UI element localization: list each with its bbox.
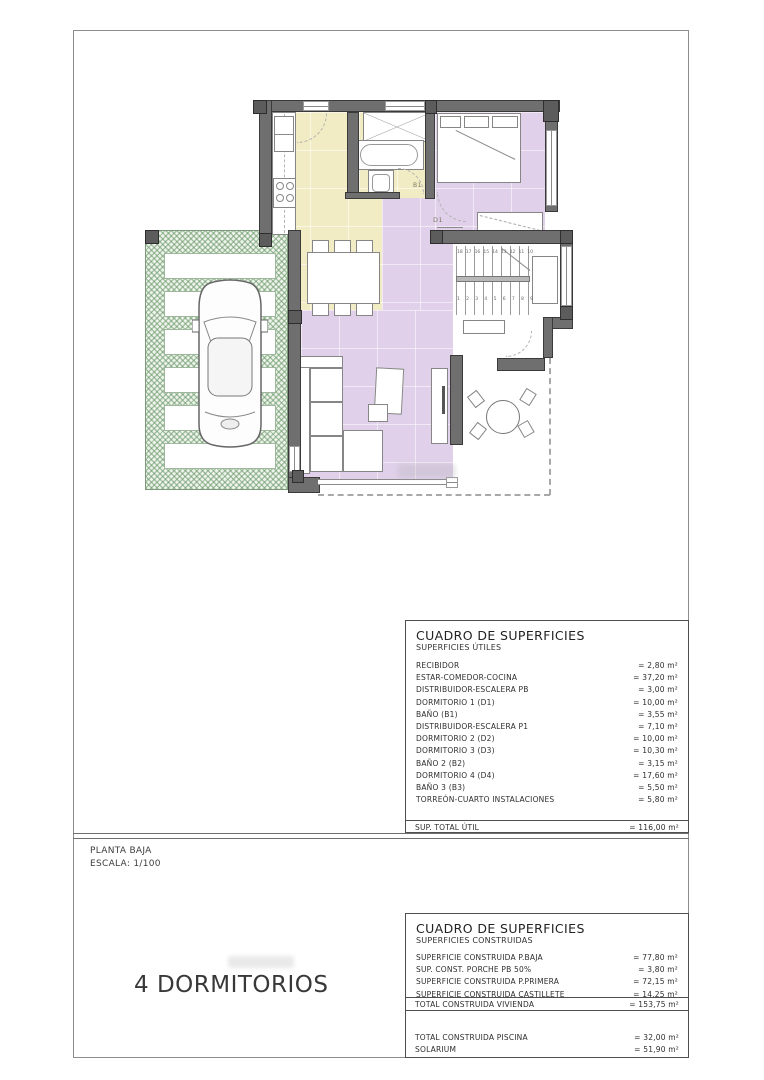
total-label: SUP. TOTAL ÚTIL — [415, 823, 479, 832]
stair-step-number: 16 — [475, 250, 481, 255]
row-label: TORREÓN-CUARTO INSTALACIONES — [416, 794, 554, 806]
wall-pier — [292, 470, 304, 483]
table-row: RECIBIDOR= 2,80 m² — [416, 660, 678, 672]
row-value: = 10,30 m² — [633, 745, 678, 757]
porch-chair — [517, 420, 534, 438]
table-row: DORMITORIO 3 (D3)= 10,30 m² — [416, 745, 678, 757]
stair-step-number: 13 — [501, 250, 507, 255]
wall-bath-bottom — [345, 192, 400, 199]
row-label: ESTAR-COMEDOR-COCINA — [416, 672, 517, 684]
porch-boundary-bottom — [318, 494, 550, 496]
wall-pier — [543, 100, 559, 122]
bath-closet — [363, 112, 431, 142]
burner-icon — [286, 194, 294, 202]
stair-step-number: 4 — [484, 297, 487, 302]
table-rows: RECIBIDOR= 2,80 m²ESTAR-COMEDOR-COCINA= … — [406, 652, 688, 806]
entry-door-gap — [289, 446, 300, 472]
row-label: SUPERFICIE CONSTRUIDA P.PRIMERA — [416, 976, 559, 988]
stair-step-number: 3 — [475, 297, 478, 302]
row-label: DORMITORIO 3 (D3) — [416, 745, 495, 757]
wall-pier — [430, 230, 443, 244]
wall-kitchen-left — [259, 100, 272, 247]
table-row: DORMITORIO 4 (D4)= 17,60 m² — [416, 770, 678, 782]
wall-bath-partition — [347, 112, 359, 198]
row-value: = 5,80 m² — [638, 794, 678, 806]
caption-line1: PLANTA BAJA — [90, 845, 161, 858]
row-value: = 2,80 m² — [638, 660, 678, 672]
row-label: SOLARIUM — [415, 1044, 456, 1056]
wall-pier — [425, 100, 437, 114]
section-divider — [73, 833, 689, 834]
total-vivienda-row: TOTAL CONSTRUIDA VIVIENDA = 153,75 m² — [405, 997, 689, 1011]
row-label: DORMITORIO 1 (D1) — [416, 697, 495, 709]
pillow — [440, 116, 461, 128]
burner-icon — [286, 182, 294, 190]
dining-chair — [312, 240, 329, 253]
porch-chair — [469, 422, 487, 440]
stair-numbers-top: 181716151413121110 — [457, 250, 533, 255]
stair-step-number: 17 — [466, 250, 472, 255]
wall-porch-top — [497, 358, 545, 371]
porch-chair — [519, 388, 537, 406]
stair-step-number: 18 — [457, 250, 463, 255]
sofa-seat — [310, 368, 343, 402]
table-row: SUP. CONST. PORCHE PB 50%= 3,80 m² — [416, 964, 678, 976]
stair-landing — [532, 256, 558, 304]
wall-pier — [253, 100, 267, 114]
stair-numbers-bottom: 123456789 — [457, 297, 533, 302]
row-label: DISTRIBUIDOR-ESCALERA P1 — [416, 721, 528, 733]
table-row: SOLARIUM= 51,90 m² — [415, 1044, 679, 1056]
stair-step-number: 9 — [530, 297, 533, 302]
sofa-chaise — [343, 430, 383, 472]
leader-line — [437, 227, 463, 228]
total-value: = 153,75 m² — [629, 1000, 679, 1009]
window-stair-right — [561, 246, 572, 306]
sofa-seat — [310, 436, 343, 472]
sofa-seat — [310, 402, 343, 436]
table-superficies-utiles: CUADRO DE SUPERFICIES SUPERFICIES ÚTILES… — [405, 620, 689, 833]
table-row: DORMITORIO 2 (D2)= 10,00 m² — [416, 733, 678, 745]
porch-chair — [467, 390, 485, 408]
row-value: = 17,60 m² — [633, 770, 678, 782]
dining-chair — [312, 303, 329, 316]
table-title: CUADRO DE SUPERFICIES — [406, 914, 688, 935]
stair-step-number: 11 — [518, 250, 524, 255]
stair-step-number: 8 — [521, 297, 524, 302]
row-label: SUP. CONST. PORCHE PB 50% — [416, 964, 531, 976]
plan-caption: PLANTA BAJA ESCALA: 1/100 — [90, 845, 161, 871]
row-label: BAÑO (B1) — [416, 709, 458, 721]
stair-step-number: 15 — [483, 250, 489, 255]
bedroom-label: D1 — [433, 216, 443, 224]
side-table — [368, 404, 388, 422]
row-label: SUPERFICIE CONSTRUIDA P.BAJA — [416, 952, 543, 964]
dining-chair — [356, 240, 373, 253]
sliding-door — [318, 479, 448, 485]
row-value: = 3,80 m² — [638, 964, 678, 976]
stair-step-number: 6 — [503, 297, 506, 302]
sliding-door-end — [446, 477, 458, 488]
stair-step-number: 12 — [510, 250, 516, 255]
table-subtitle: SUPERFICIES ÚTILES — [406, 642, 688, 652]
total-label: TOTAL CONSTRUIDA VIVIENDA — [415, 1000, 534, 1009]
row-value: = 37,20 m² — [633, 672, 678, 684]
table-rows: SUPERFICIE CONSTRUIDA P.BAJA= 77,80 m²SU… — [406, 945, 688, 1001]
stair-handrail — [456, 276, 530, 282]
row-value: = 3,55 m² — [638, 709, 678, 721]
caption-line2: ESCALA: 1/100 — [90, 858, 161, 871]
stair-step-number: 5 — [494, 297, 497, 302]
table-row: DISTRIBUIDOR-ESCALERA PB= 3,00 m² — [416, 684, 678, 696]
stair-step-number: 14 — [492, 250, 498, 255]
sofa-back — [300, 356, 310, 474]
wall-pier — [560, 230, 573, 244]
total-util-row: SUP. TOTAL ÚTIL = 116,00 m² — [405, 820, 689, 833]
row-value: = 51,90 m² — [634, 1044, 679, 1056]
table-row: TORREÓN-CUARTO INSTALACIONES= 5,80 m² — [416, 794, 678, 806]
stair-step-number: 2 — [466, 297, 469, 302]
row-value: = 10,00 m² — [633, 697, 678, 709]
row-label: BAÑO 3 (B3) — [416, 782, 465, 794]
window-kitchen-top — [303, 101, 329, 111]
fridge-line — [274, 134, 294, 135]
table-row: TOTAL CONSTRUIDA PISCINA= 32,00 m² — [415, 1032, 679, 1044]
table-subtitle: SUPERFICIES CONSTRUIDAS — [406, 935, 688, 945]
row-value: = 72,15 m² — [633, 976, 678, 988]
table-row: DORMITORIO 1 (D1)= 10,00 m² — [416, 697, 678, 709]
porch-table — [486, 400, 520, 434]
car-icon — [192, 276, 268, 452]
row-label: RECIBIDOR — [416, 660, 459, 672]
table-row: BAÑO 3 (B3)= 5,50 m² — [416, 782, 678, 794]
row-value: = 3,15 m² — [638, 758, 678, 770]
extra-rows: TOTAL CONSTRUIDA PISCINA= 32,00 m²SOLARI… — [405, 1032, 689, 1056]
row-label: BAÑO 2 (B2) — [416, 758, 465, 770]
row-value: = 5,50 m² — [638, 782, 678, 794]
watermark — [398, 464, 456, 478]
row-value: = 10,00 m² — [633, 733, 678, 745]
dining-chair — [334, 240, 351, 253]
stair-step-number: 1 — [457, 297, 460, 302]
wall-bath-bedroom — [425, 103, 435, 199]
row-label: DISTRIBUIDOR-ESCALERA PB — [416, 684, 529, 696]
section-divider — [73, 838, 689, 839]
wall-stair-return — [543, 317, 553, 358]
table-row: BAÑO (B1)= 3,55 m² — [416, 709, 678, 721]
stair-step-number: 7 — [512, 297, 515, 302]
row-label: DORMITORIO 4 (D4) — [416, 770, 495, 782]
bedrooms-count-label: 4 DORMITORIOS — [134, 972, 329, 998]
wall-pier — [145, 230, 159, 244]
row-value: = 77,80 m² — [633, 952, 678, 964]
row-value: = 7,10 m² — [638, 721, 678, 733]
burner-icon — [276, 182, 284, 190]
window-bath-top — [385, 101, 425, 111]
dining-chair — [356, 303, 373, 316]
dining-table — [307, 252, 380, 304]
row-label: TOTAL CONSTRUIDA PISCINA — [415, 1032, 528, 1044]
stair-step-number: 10 — [527, 250, 533, 255]
tv-icon — [442, 386, 445, 414]
wall-stair-top — [430, 230, 573, 244]
pillow — [464, 116, 489, 128]
window-bedroom-right — [546, 130, 557, 206]
table-row: ESTAR-COMEDOR-COCINA= 37,20 m² — [416, 672, 678, 684]
porch-boundary-right — [549, 358, 551, 495]
table-row: BAÑO 2 (B2)= 3,15 m² — [416, 758, 678, 770]
table-row: DISTRIBUIDOR-ESCALERA P1= 7,10 m² — [416, 721, 678, 733]
table-row: SUPERFICIE CONSTRUIDA P.BAJA= 77,80 m² — [416, 952, 678, 964]
tv-bench — [431, 368, 448, 444]
table-title: CUADRO DE SUPERFICIES — [406, 621, 688, 642]
row-value: = 32,00 m² — [634, 1032, 679, 1044]
understair-closet — [463, 320, 505, 334]
row-label: DORMITORIO 2 (D2) — [416, 733, 495, 745]
watermark — [228, 956, 294, 968]
row-value: = 3,00 m² — [638, 684, 678, 696]
sofa-armrest — [300, 356, 343, 368]
burner-icon — [276, 194, 284, 202]
dining-chair — [334, 303, 351, 316]
total-value: = 116,00 m² — [629, 823, 679, 832]
wall-pier — [560, 306, 573, 320]
wall-pier — [288, 310, 302, 324]
pillow — [492, 116, 518, 128]
bath-sink-bowl — [372, 174, 390, 192]
table-row: SUPERFICIE CONSTRUIDA P.PRIMERA= 72,15 m… — [416, 976, 678, 988]
wall-pier — [259, 233, 272, 247]
wall-living-right — [450, 355, 463, 445]
bathtub-basin — [360, 144, 418, 166]
